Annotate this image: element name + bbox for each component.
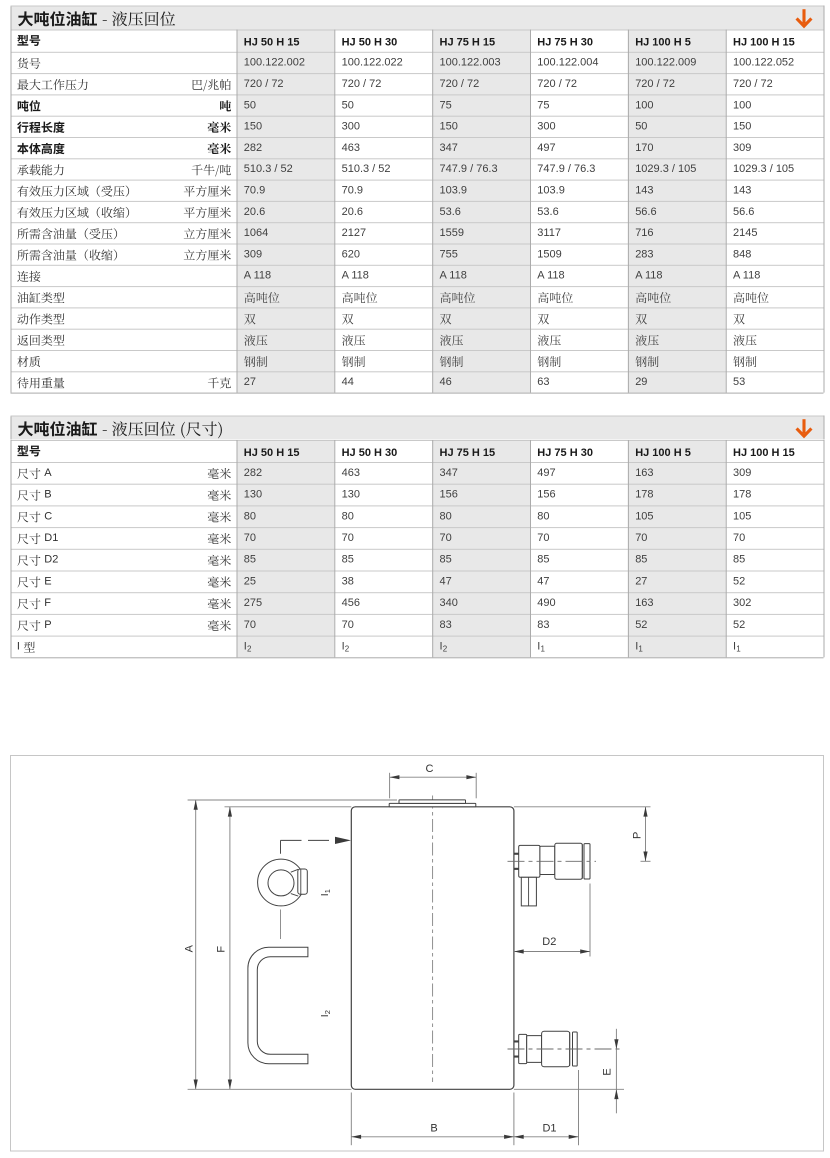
svg-text:275: 275 <box>244 597 262 609</box>
svg-text:720 / 72: 720 / 72 <box>342 78 382 90</box>
svg-text:53.6: 53.6 <box>537 206 558 218</box>
svg-text:HJ 50 H 30: HJ 50 H 30 <box>342 36 398 48</box>
svg-text:1: 1 <box>541 645 546 654</box>
svg-text:38: 38 <box>342 575 354 587</box>
svg-text:463: 463 <box>342 467 360 479</box>
svg-text:143: 143 <box>733 185 751 197</box>
svg-text:F: F <box>215 946 227 953</box>
svg-text:100: 100 <box>635 99 653 111</box>
svg-text:HJ 100 H 15: HJ 100 H 15 <box>733 36 795 48</box>
svg-text:HJ 100 H 5: HJ 100 H 5 <box>635 36 691 48</box>
svg-text:755: 755 <box>440 248 458 260</box>
svg-text:70: 70 <box>244 532 256 544</box>
svg-text:720 / 72: 720 / 72 <box>635 78 675 90</box>
svg-text:75: 75 <box>537 99 549 111</box>
svg-text:340: 340 <box>440 597 458 609</box>
svg-text:70: 70 <box>635 532 647 544</box>
svg-text:56.6: 56.6 <box>635 206 656 218</box>
svg-text:63: 63 <box>537 376 549 388</box>
svg-text:70: 70 <box>342 532 354 544</box>
svg-text:163: 163 <box>635 467 653 479</box>
svg-text:HJ 50 H 30: HJ 50 H 30 <box>342 447 398 459</box>
svg-text:70: 70 <box>440 532 452 544</box>
svg-text:B: B <box>44 489 51 501</box>
svg-text:80: 80 <box>244 510 256 522</box>
svg-text:100.122.004: 100.122.004 <box>537 57 598 69</box>
svg-text:283: 283 <box>635 248 653 260</box>
svg-text:3117: 3117 <box>537 227 561 239</box>
svg-text:80: 80 <box>537 510 549 522</box>
svg-text:103.9: 103.9 <box>440 185 468 197</box>
svg-text:I: I <box>17 641 20 653</box>
svg-text:720 / 72: 720 / 72 <box>537 78 577 90</box>
svg-text:1509: 1509 <box>537 248 561 260</box>
svg-text:300: 300 <box>537 121 555 133</box>
svg-text:52: 52 <box>635 619 647 631</box>
svg-text:105: 105 <box>635 510 653 522</box>
svg-text:100.122.052: 100.122.052 <box>733 57 794 69</box>
svg-text:309: 309 <box>244 248 262 260</box>
svg-text:70: 70 <box>342 619 354 631</box>
svg-text:P: P <box>632 832 644 839</box>
svg-text:80: 80 <box>440 510 452 522</box>
svg-text:2: 2 <box>247 645 252 654</box>
svg-text:309: 309 <box>733 142 751 154</box>
svg-text:70: 70 <box>733 532 745 544</box>
svg-text:1: 1 <box>638 645 643 654</box>
svg-text:HJ 50 H 15: HJ 50 H 15 <box>244 36 300 48</box>
svg-text:50: 50 <box>342 99 354 111</box>
svg-text:85: 85 <box>244 554 256 566</box>
svg-text:A 118: A 118 <box>244 270 271 282</box>
svg-text:130: 130 <box>244 489 262 501</box>
svg-text:D1: D1 <box>44 532 58 544</box>
svg-text:282: 282 <box>244 467 262 479</box>
svg-text:497: 497 <box>537 142 555 154</box>
svg-text:A 118: A 118 <box>342 270 369 282</box>
svg-text:70: 70 <box>244 619 256 631</box>
svg-text:85: 85 <box>635 554 647 566</box>
svg-text:A 118: A 118 <box>537 270 564 282</box>
svg-text:347: 347 <box>440 142 458 154</box>
svg-text:46: 46 <box>440 376 452 388</box>
svg-text:1064: 1064 <box>244 227 268 239</box>
svg-text:HJ 50 H 15: HJ 50 H 15 <box>244 447 300 459</box>
svg-text:163: 163 <box>635 597 653 609</box>
svg-text:100.122.022: 100.122.022 <box>342 57 403 69</box>
svg-text:1029.3 / 105: 1029.3 / 105 <box>635 163 696 175</box>
svg-text:720 / 72: 720 / 72 <box>440 78 480 90</box>
svg-text:300: 300 <box>342 121 360 133</box>
svg-text:156: 156 <box>537 489 555 501</box>
svg-text:156: 156 <box>440 489 458 501</box>
svg-text:100.122.002: 100.122.002 <box>244 57 305 69</box>
svg-text:747.9 / 76.3: 747.9 / 76.3 <box>537 163 595 175</box>
svg-text:HJ 100 H 15: HJ 100 H 15 <box>733 447 795 459</box>
svg-text:44: 44 <box>342 376 354 388</box>
svg-text:716: 716 <box>635 227 653 239</box>
svg-text:A 118: A 118 <box>733 270 760 282</box>
svg-text:25: 25 <box>244 575 256 587</box>
svg-text:282: 282 <box>244 142 262 154</box>
svg-text:105: 105 <box>733 510 751 522</box>
svg-text:70.9: 70.9 <box>342 185 363 197</box>
svg-text:52: 52 <box>733 575 745 587</box>
svg-text:2127: 2127 <box>342 227 366 239</box>
svg-text:85: 85 <box>440 554 452 566</box>
svg-text:50: 50 <box>635 121 647 133</box>
svg-text:52: 52 <box>733 619 745 631</box>
svg-text:309: 309 <box>733 467 751 479</box>
svg-text:720 / 72: 720 / 72 <box>244 78 284 90</box>
svg-text:83: 83 <box>440 619 452 631</box>
svg-text:E: E <box>44 575 51 587</box>
svg-text:170: 170 <box>635 142 653 154</box>
svg-text:D1: D1 <box>542 1123 556 1135</box>
svg-text:456: 456 <box>342 597 360 609</box>
svg-text:53: 53 <box>733 376 745 388</box>
svg-text:747.9 / 76.3: 747.9 / 76.3 <box>440 163 498 175</box>
svg-text:HJ 100 H 5: HJ 100 H 5 <box>635 447 691 459</box>
svg-text:2: 2 <box>345 645 350 654</box>
svg-text:100.122.009: 100.122.009 <box>635 57 696 69</box>
svg-text:A: A <box>184 944 196 952</box>
svg-text:130: 130 <box>342 489 360 501</box>
svg-text:620: 620 <box>342 248 360 260</box>
svg-text:150: 150 <box>244 121 262 133</box>
svg-text:A: A <box>44 467 52 479</box>
svg-text:20.6: 20.6 <box>244 206 265 218</box>
svg-text:F: F <box>44 597 51 609</box>
svg-text:B: B <box>430 1123 437 1135</box>
svg-text:HJ 75 H 15: HJ 75 H 15 <box>440 36 496 48</box>
svg-text:47: 47 <box>537 575 549 587</box>
svg-text:463: 463 <box>342 142 360 154</box>
svg-text:85: 85 <box>733 554 745 566</box>
svg-text:83: 83 <box>537 619 549 631</box>
svg-text:47: 47 <box>440 575 452 587</box>
svg-text:2145: 2145 <box>733 227 757 239</box>
svg-text:C: C <box>44 510 52 522</box>
svg-text:P: P <box>44 619 51 631</box>
svg-text:1559: 1559 <box>440 227 464 239</box>
svg-text:302: 302 <box>733 597 751 609</box>
svg-text:1: 1 <box>736 645 741 654</box>
svg-text:A 118: A 118 <box>635 270 662 282</box>
svg-text:70.9: 70.9 <box>244 185 265 197</box>
svg-text:D2: D2 <box>542 936 556 948</box>
svg-text:C: C <box>426 763 434 775</box>
svg-text:2: 2 <box>443 645 448 654</box>
svg-text:103.9: 103.9 <box>537 185 565 197</box>
svg-text:75: 75 <box>440 99 452 111</box>
svg-text:20.6: 20.6 <box>342 206 363 218</box>
svg-text:A 118: A 118 <box>440 270 467 282</box>
svg-text:490: 490 <box>537 597 555 609</box>
svg-text:178: 178 <box>733 489 751 501</box>
svg-text:80: 80 <box>342 510 354 522</box>
svg-text:HJ 75 H 15: HJ 75 H 15 <box>440 447 496 459</box>
svg-text:53.6: 53.6 <box>440 206 461 218</box>
svg-text:HJ 75 H 30: HJ 75 H 30 <box>537 36 593 48</box>
svg-text:50: 50 <box>244 99 256 111</box>
svg-text:29: 29 <box>635 376 647 388</box>
svg-text:143: 143 <box>635 185 653 197</box>
svg-text:510.3 / 52: 510.3 / 52 <box>342 163 391 175</box>
svg-text:150: 150 <box>733 121 751 133</box>
svg-text:85: 85 <box>342 554 354 566</box>
svg-text:1029.3 / 105: 1029.3 / 105 <box>733 163 794 175</box>
svg-text:56.6: 56.6 <box>733 206 754 218</box>
svg-text:178: 178 <box>635 489 653 501</box>
svg-text:848: 848 <box>733 248 751 260</box>
svg-text:70: 70 <box>537 532 549 544</box>
svg-text:D2: D2 <box>44 554 58 566</box>
svg-text:100.122.003: 100.122.003 <box>440 57 501 69</box>
svg-text:27: 27 <box>244 376 256 388</box>
svg-text:100: 100 <box>733 99 751 111</box>
svg-text:27: 27 <box>635 575 647 587</box>
svg-text:HJ 75 H 30: HJ 75 H 30 <box>537 447 593 459</box>
svg-text:150: 150 <box>440 121 458 133</box>
svg-text:347: 347 <box>440 467 458 479</box>
svg-text:720 / 72: 720 / 72 <box>733 78 773 90</box>
svg-text:510.3 / 52: 510.3 / 52 <box>244 163 293 175</box>
svg-text:E: E <box>601 1068 613 1075</box>
svg-text:85: 85 <box>537 554 549 566</box>
svg-text:497: 497 <box>537 467 555 479</box>
